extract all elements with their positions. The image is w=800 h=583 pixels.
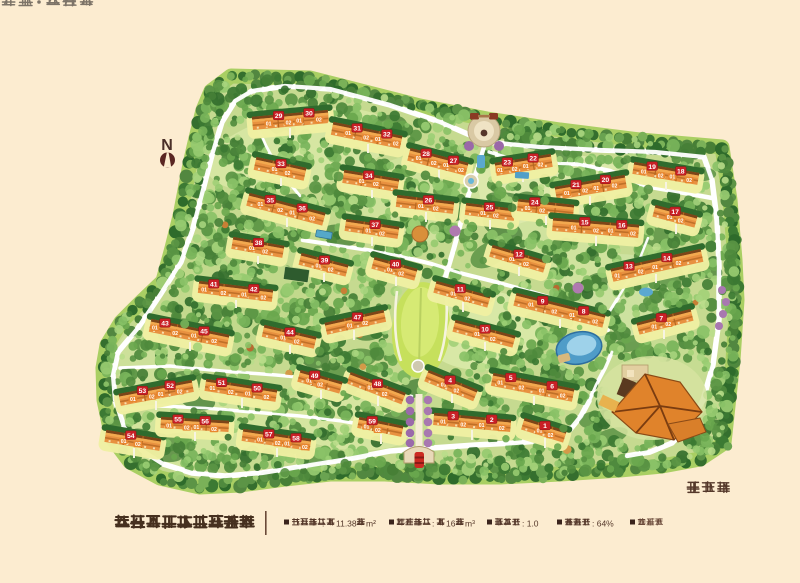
- svg-text:: 1.0: : 1.0: [522, 519, 539, 529]
- svg-text:6: 6: [550, 383, 554, 390]
- svg-text:17: 17: [671, 209, 679, 216]
- svg-text:23: 23: [504, 160, 512, 167]
- svg-text:01: 01: [245, 391, 251, 397]
- svg-text:: 64%: : 64%: [592, 519, 614, 529]
- svg-text:18: 18: [677, 169, 685, 176]
- svg-text:41: 41: [210, 282, 218, 289]
- svg-text:47: 47: [354, 315, 362, 322]
- svg-text:36: 36: [298, 206, 306, 213]
- svg-text:5: 5: [509, 375, 513, 382]
- svg-text::: :: [432, 519, 434, 529]
- svg-text:02: 02: [277, 208, 283, 214]
- svg-text:01: 01: [210, 386, 216, 392]
- svg-text:26: 26: [425, 198, 433, 205]
- svg-text:37: 37: [371, 222, 379, 229]
- svg-text:59: 59: [368, 418, 376, 425]
- svg-text:01: 01: [365, 228, 371, 234]
- svg-text:01: 01: [121, 439, 127, 445]
- svg-text:58: 58: [292, 436, 300, 443]
- svg-text:30: 30: [305, 111, 313, 118]
- svg-text:02: 02: [539, 209, 545, 215]
- svg-text:02: 02: [523, 262, 529, 268]
- svg-text:02: 02: [373, 182, 379, 188]
- svg-text:01: 01: [201, 288, 207, 294]
- svg-text:01: 01: [296, 119, 302, 125]
- svg-text:01: 01: [564, 191, 570, 197]
- svg-text:01: 01: [443, 163, 449, 169]
- svg-text:11: 11: [457, 286, 464, 293]
- svg-text:01: 01: [497, 168, 503, 174]
- svg-text:49: 49: [311, 373, 319, 380]
- svg-text:02: 02: [398, 272, 404, 278]
- svg-text:02: 02: [379, 231, 385, 237]
- svg-text:01: 01: [539, 389, 545, 395]
- svg-text:02: 02: [302, 445, 308, 451]
- svg-text:01: 01: [347, 323, 353, 329]
- svg-text:02: 02: [538, 163, 544, 169]
- svg-text:12: 12: [515, 252, 523, 259]
- svg-text:01: 01: [652, 265, 658, 271]
- svg-text:02: 02: [519, 386, 525, 392]
- svg-text:1: 1: [543, 423, 547, 430]
- svg-text:02: 02: [261, 296, 267, 302]
- svg-text:50: 50: [253, 386, 261, 393]
- svg-text:01: 01: [593, 186, 599, 192]
- svg-text:44: 44: [286, 330, 294, 337]
- svg-text:57: 57: [265, 432, 273, 439]
- svg-text:13: 13: [625, 264, 633, 271]
- svg-text:01: 01: [158, 392, 164, 398]
- svg-text:02: 02: [551, 309, 557, 315]
- svg-text:25: 25: [486, 205, 494, 212]
- svg-text:02: 02: [275, 441, 281, 447]
- svg-text:27: 27: [450, 158, 458, 165]
- svg-text:01: 01: [194, 425, 200, 431]
- svg-text:01: 01: [497, 380, 503, 386]
- svg-text:02: 02: [172, 331, 178, 337]
- svg-text:7: 7: [659, 315, 663, 322]
- svg-text:02: 02: [221, 291, 227, 297]
- svg-text:16: 16: [446, 519, 456, 529]
- svg-text:53: 53: [139, 388, 147, 395]
- svg-text:02: 02: [286, 121, 292, 127]
- svg-text:02: 02: [309, 217, 315, 223]
- svg-text:02: 02: [665, 322, 671, 328]
- svg-text:02: 02: [135, 442, 141, 448]
- svg-text:48: 48: [374, 381, 382, 388]
- svg-text:02: 02: [375, 428, 381, 434]
- svg-text:01: 01: [528, 303, 534, 309]
- svg-text:02: 02: [493, 214, 499, 220]
- svg-text:55: 55: [174, 417, 182, 424]
- svg-text:02: 02: [638, 269, 644, 275]
- svg-text:42: 42: [250, 286, 258, 293]
- svg-text:02: 02: [678, 219, 684, 225]
- svg-text:02: 02: [294, 340, 300, 346]
- svg-text:02: 02: [393, 142, 399, 148]
- svg-text:43: 43: [161, 321, 169, 328]
- svg-text:02: 02: [582, 189, 588, 195]
- svg-text:01: 01: [152, 326, 158, 332]
- svg-text:N: N: [161, 137, 173, 154]
- svg-text:02: 02: [362, 321, 368, 327]
- svg-text:01: 01: [257, 437, 263, 443]
- svg-text:02: 02: [458, 168, 464, 174]
- svg-text:01: 01: [289, 210, 295, 216]
- svg-text:02: 02: [560, 394, 566, 400]
- svg-text:02: 02: [317, 383, 323, 389]
- svg-text:02: 02: [316, 118, 322, 124]
- svg-text:02: 02: [184, 425, 190, 431]
- svg-text:01: 01: [614, 274, 620, 280]
- svg-text:01: 01: [166, 423, 172, 429]
- svg-text:01: 01: [523, 164, 529, 170]
- svg-text:02: 02: [512, 167, 518, 173]
- svg-text:02: 02: [592, 320, 598, 326]
- svg-text:19: 19: [648, 164, 656, 171]
- svg-text:01: 01: [345, 131, 351, 137]
- svg-text:10: 10: [481, 327, 489, 334]
- svg-text:54: 54: [127, 433, 135, 440]
- svg-text:22: 22: [529, 156, 537, 163]
- svg-text:24: 24: [531, 200, 539, 207]
- svg-text:01: 01: [359, 179, 365, 185]
- svg-text:01: 01: [479, 423, 485, 429]
- svg-text:15: 15: [581, 219, 589, 226]
- svg-text:02: 02: [499, 426, 505, 432]
- svg-text:11.38: 11.38: [336, 519, 357, 529]
- svg-text:33: 33: [277, 161, 285, 168]
- svg-text:40: 40: [392, 262, 400, 269]
- svg-text:02: 02: [548, 433, 554, 439]
- svg-text:51: 51: [218, 380, 226, 387]
- svg-text:45: 45: [200, 329, 208, 336]
- svg-text:01: 01: [440, 420, 446, 426]
- svg-text:01: 01: [651, 324, 657, 330]
- svg-text:m³: m³: [465, 519, 475, 529]
- svg-text:02: 02: [490, 337, 496, 343]
- svg-text:01: 01: [266, 121, 272, 127]
- svg-text:01: 01: [480, 211, 486, 217]
- svg-text:01: 01: [258, 202, 264, 208]
- svg-text:02: 02: [454, 389, 460, 395]
- svg-text:02: 02: [177, 389, 183, 395]
- svg-text:01: 01: [418, 204, 424, 210]
- svg-text:02: 02: [262, 250, 268, 256]
- svg-text::: :: [322, 519, 324, 529]
- svg-text:21: 21: [572, 182, 580, 189]
- svg-text:9: 9: [541, 298, 545, 305]
- svg-text:31: 31: [353, 126, 361, 133]
- svg-text:01: 01: [608, 229, 614, 235]
- svg-text:01: 01: [525, 206, 531, 212]
- svg-text:02: 02: [211, 427, 217, 433]
- svg-text:02: 02: [431, 161, 437, 167]
- svg-text:02: 02: [363, 136, 369, 142]
- svg-text:38: 38: [255, 240, 263, 247]
- svg-text:02: 02: [433, 207, 439, 213]
- svg-text:34: 34: [365, 173, 373, 180]
- svg-text:02: 02: [460, 423, 466, 429]
- svg-text:01: 01: [474, 332, 480, 338]
- svg-text:02: 02: [593, 228, 599, 234]
- svg-text:52: 52: [166, 383, 174, 390]
- svg-text:32: 32: [383, 132, 391, 139]
- svg-text:28: 28: [422, 151, 430, 158]
- svg-text:01: 01: [191, 334, 197, 340]
- svg-text:02: 02: [228, 390, 234, 396]
- svg-text:39: 39: [321, 258, 329, 265]
- svg-text:02: 02: [676, 261, 682, 267]
- svg-text:01: 01: [571, 226, 577, 232]
- svg-text:02: 02: [464, 297, 470, 303]
- svg-text:m²: m²: [366, 519, 376, 529]
- svg-text:8: 8: [582, 308, 586, 315]
- svg-text:02: 02: [211, 339, 217, 345]
- svg-text:01: 01: [416, 156, 422, 162]
- svg-text:29: 29: [275, 113, 283, 120]
- svg-text:01: 01: [569, 313, 575, 319]
- svg-text:01: 01: [670, 174, 676, 180]
- svg-text:56: 56: [201, 418, 209, 425]
- svg-text:02: 02: [264, 395, 270, 401]
- svg-text:3: 3: [451, 413, 455, 420]
- svg-text:02: 02: [285, 171, 291, 177]
- svg-text:14: 14: [663, 255, 671, 262]
- svg-text:02: 02: [382, 392, 388, 398]
- svg-text:01: 01: [641, 170, 647, 176]
- svg-text:02: 02: [658, 173, 664, 179]
- svg-text:01: 01: [241, 292, 247, 298]
- svg-text:20: 20: [602, 177, 610, 184]
- svg-text:4: 4: [448, 378, 452, 385]
- svg-text:02: 02: [686, 178, 692, 184]
- svg-text:02: 02: [630, 231, 636, 237]
- svg-text:01: 01: [375, 137, 381, 143]
- svg-text:2: 2: [490, 417, 494, 424]
- svg-text:02: 02: [612, 184, 618, 190]
- svg-text:01: 01: [284, 441, 290, 447]
- svg-text:35: 35: [267, 197, 275, 204]
- svg-text:02: 02: [149, 395, 155, 401]
- svg-text:02: 02: [328, 268, 334, 274]
- svg-text:01: 01: [130, 397, 136, 403]
- svg-text:16: 16: [618, 222, 626, 229]
